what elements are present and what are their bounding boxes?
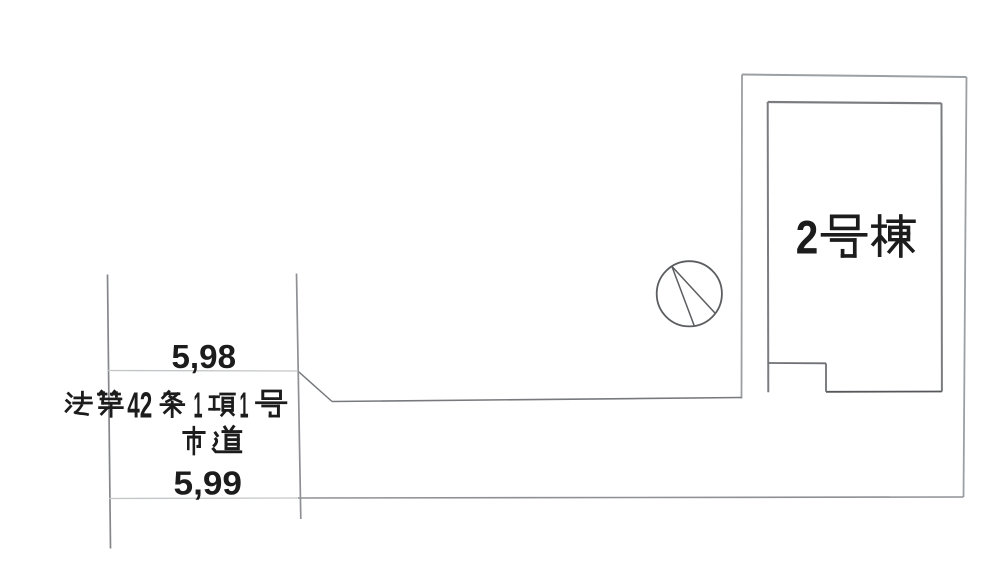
svg-text:5,98: 5,98 <box>172 339 237 376</box>
svg-text:1: 1 <box>240 385 249 426</box>
svg-text:42: 42 <box>127 385 152 426</box>
svg-text:5,99: 5,99 <box>174 466 243 503</box>
svg-text:1: 1 <box>194 385 203 426</box>
svg-text:2: 2 <box>796 211 819 264</box>
